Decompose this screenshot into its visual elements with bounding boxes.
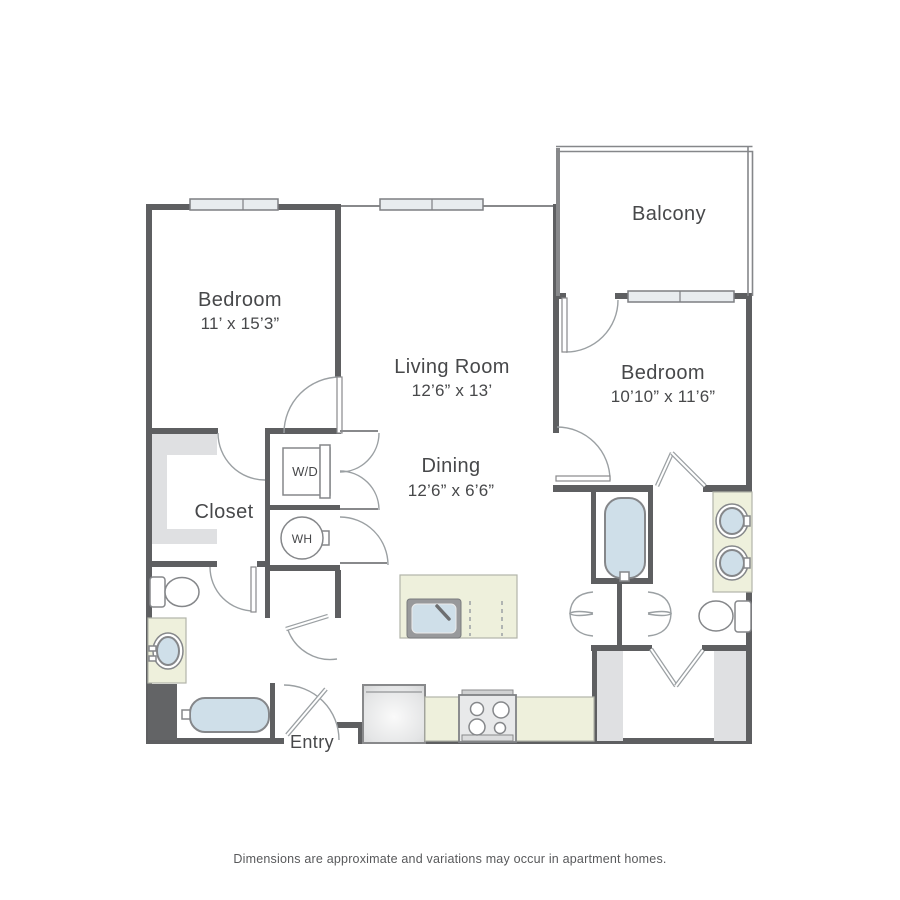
walkin-closet-shelving	[597, 651, 746, 741]
walkin-closet-door	[651, 649, 703, 686]
balcony-door	[562, 298, 618, 352]
bedroom2-dims: 10’10” x 11’6”	[611, 387, 716, 406]
water-heater-door	[340, 517, 388, 565]
bifold-doors-right	[648, 592, 671, 636]
bathtub-right	[605, 498, 645, 581]
floor-plan-drawing: Bedroom 11’ x 15’3” Living Room 12’6” x …	[0, 0, 900, 900]
bathtub-left	[182, 698, 269, 732]
burner-icon	[471, 703, 484, 716]
balcony-label: Balcony	[632, 203, 706, 225]
kitchen-island	[400, 575, 517, 638]
stove	[459, 690, 516, 742]
linen-closet-door	[286, 616, 337, 660]
burner-icon	[495, 723, 506, 734]
bathroom2-door	[657, 453, 705, 486]
floor-plan-page: Bedroom 11’ x 15’3” Living Room 12’6” x …	[0, 0, 900, 900]
refrigerator	[363, 685, 425, 743]
walls	[146, 148, 752, 744]
bedroom1-dims: 11’ x 15’3”	[201, 314, 280, 333]
bedroom2-label: Bedroom	[621, 362, 705, 384]
living-room-dims: 12’6” x 13’	[412, 381, 493, 400]
bedroom2-door	[556, 427, 610, 481]
dining-dims: 12’6” x 6’6”	[408, 481, 495, 500]
burner-icon	[493, 702, 509, 718]
dining-label: Dining	[421, 455, 480, 477]
closet-door	[218, 433, 265, 480]
living-room-label: Living Room	[394, 356, 510, 378]
shower-block	[148, 684, 177, 740]
vanity-left	[148, 618, 186, 683]
bedroom1-door	[284, 377, 342, 433]
disclaimer-text: Dimensions are approximate and variation…	[233, 852, 666, 866]
toilet-left	[150, 577, 199, 607]
burner-icon	[469, 719, 485, 735]
bedroom2-window	[628, 291, 734, 302]
washer-closet-doors	[340, 431, 379, 510]
washer-dryer-label: W/D	[292, 464, 318, 479]
water-heater-label: WH	[292, 532, 312, 546]
bathroom1-door	[210, 567, 256, 612]
toilet-right	[699, 601, 751, 632]
living-room-window	[380, 199, 483, 210]
wardrobe-shelving	[152, 434, 217, 544]
vanity-right	[713, 492, 752, 592]
bedroom1-window	[190, 199, 278, 210]
bifold-doors-left	[570, 592, 593, 636]
closet-label: Closet	[194, 501, 253, 523]
entry-label: Entry	[290, 732, 334, 752]
bedroom1-label: Bedroom	[198, 289, 282, 311]
